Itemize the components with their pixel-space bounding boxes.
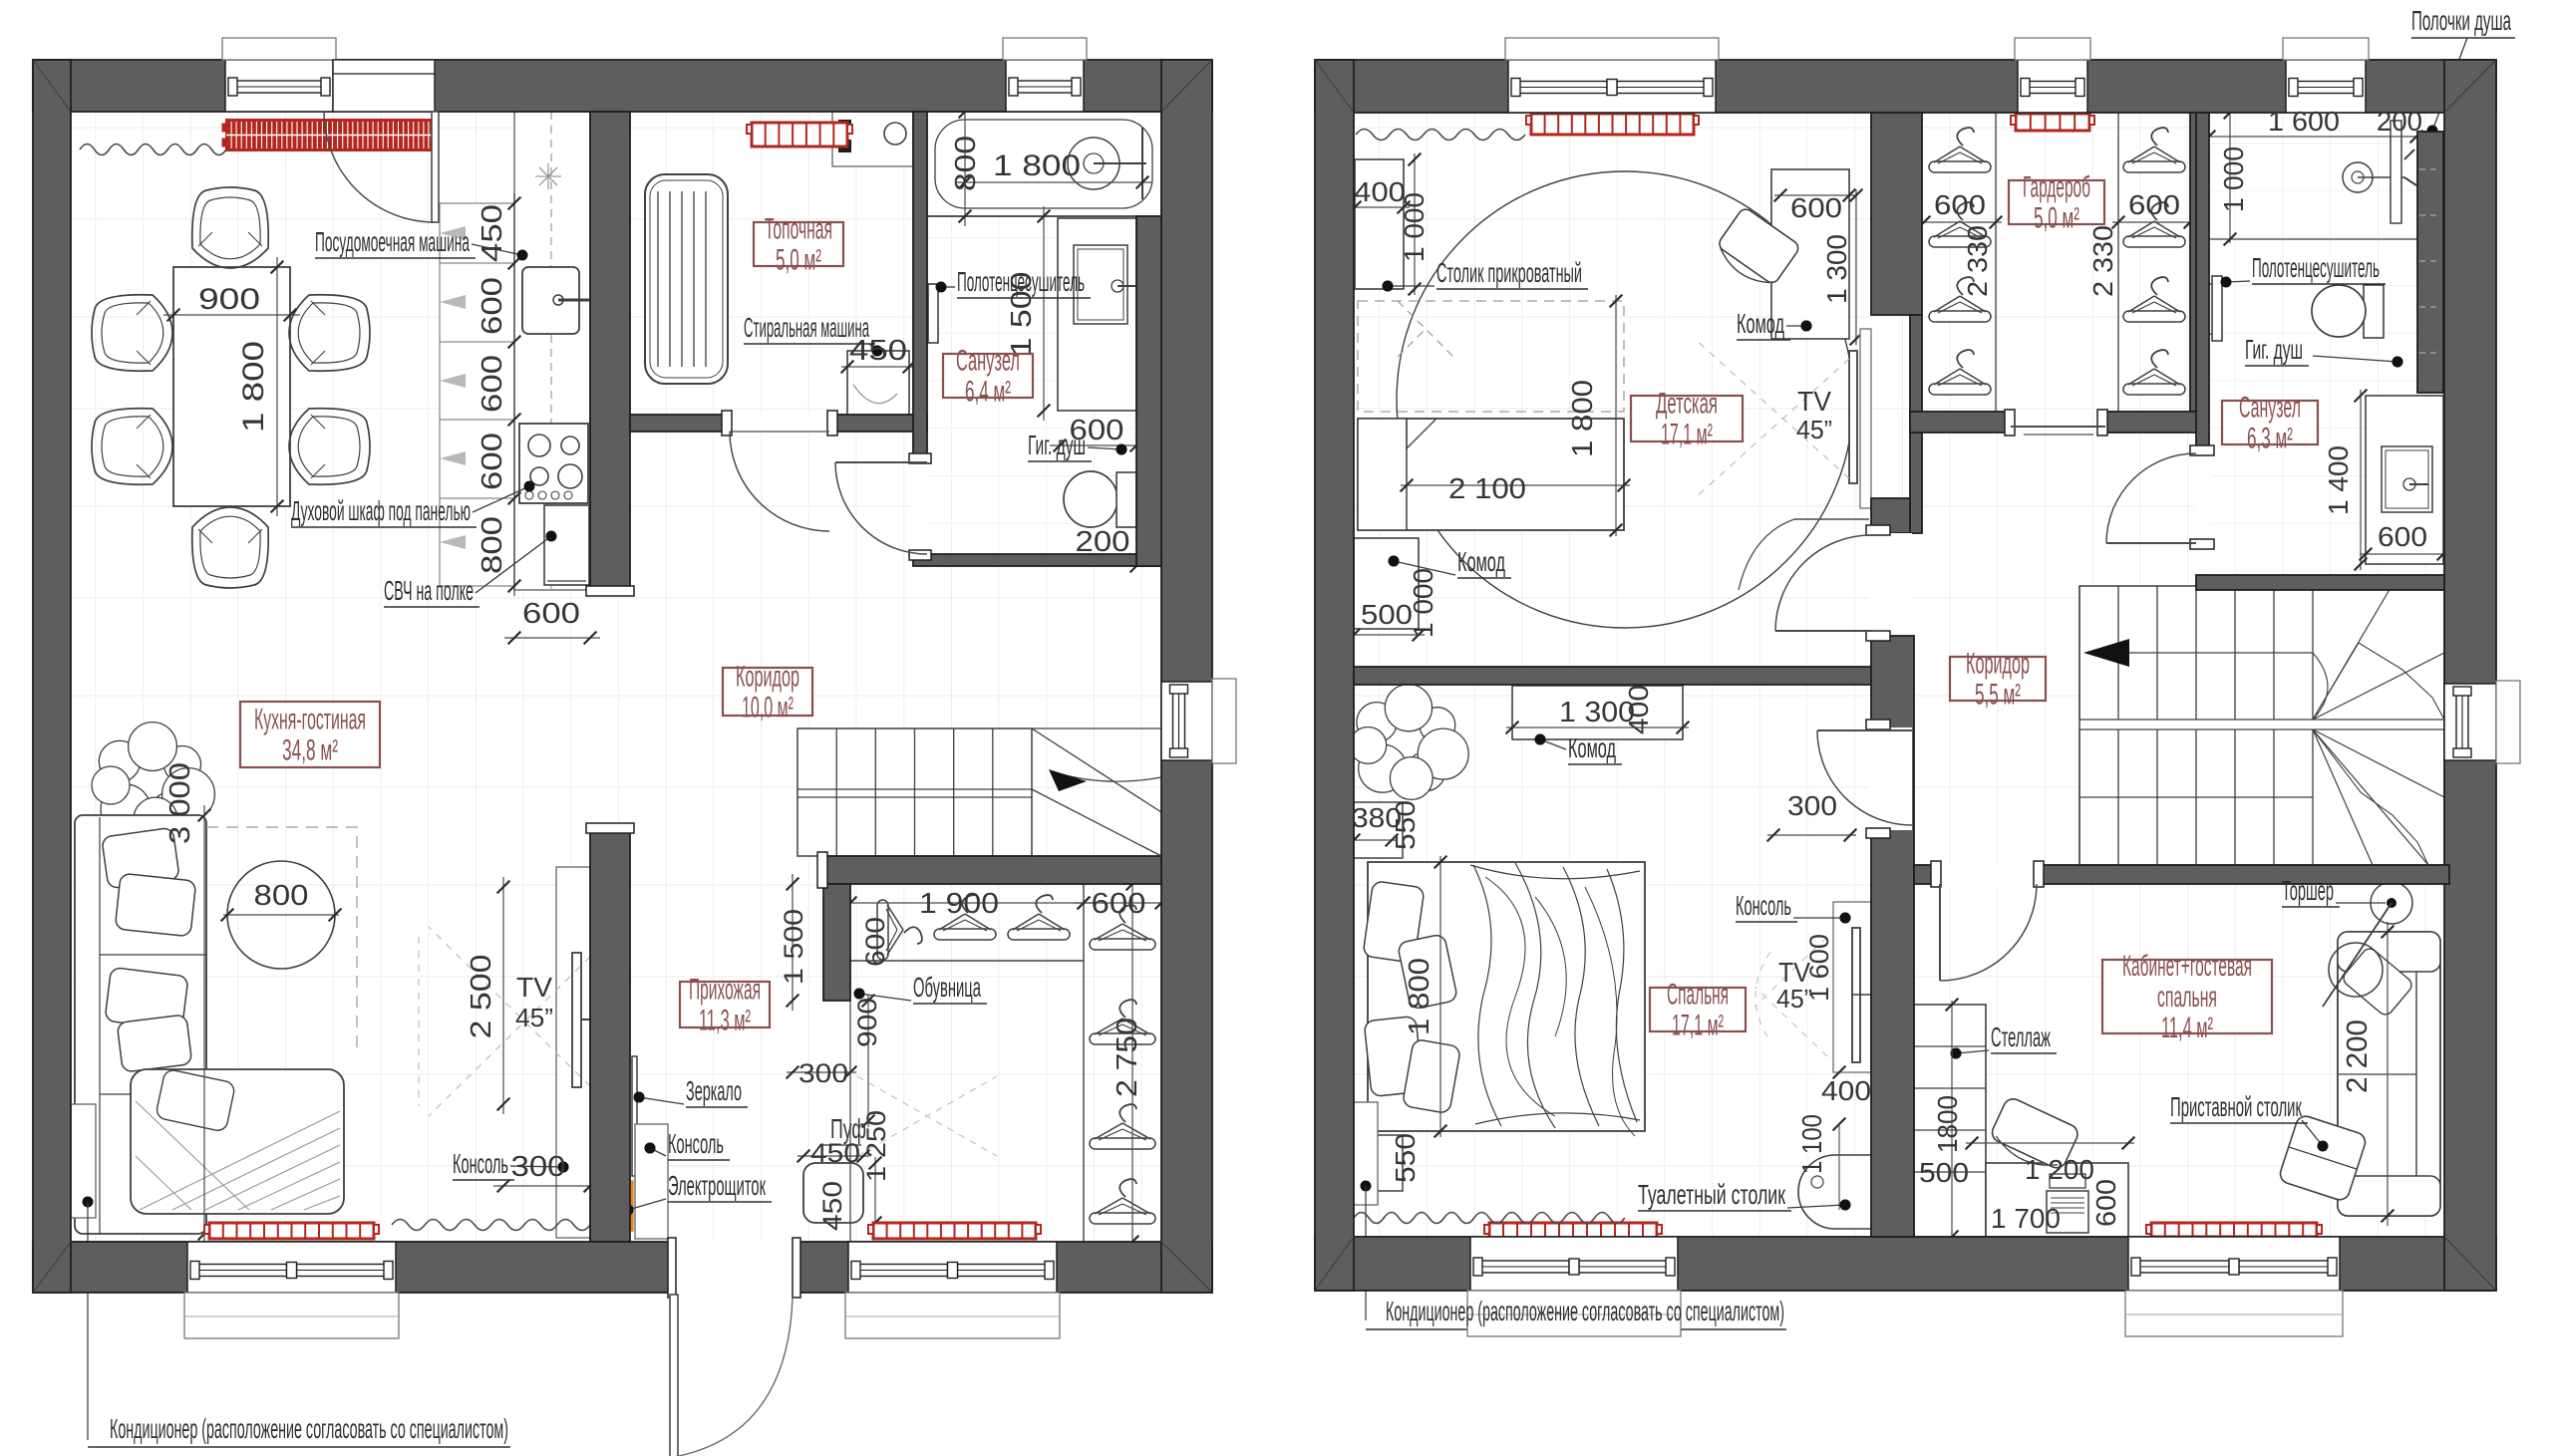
svg-text:2 330: 2 330	[1962, 225, 1993, 297]
svg-text:1 800: 1 800	[993, 149, 1081, 182]
svg-text:Гардероб: Гардероб	[2023, 171, 2090, 204]
svg-text:1 800: 1 800	[1567, 380, 1599, 457]
svg-text:400: 400	[1623, 685, 1654, 734]
svg-text:Санузел: Санузел	[2239, 392, 2301, 425]
svg-text:600: 600	[1092, 888, 1146, 920]
svg-text:1 900: 1 900	[919, 888, 999, 920]
svg-text:2 100: 2 100	[1448, 473, 1526, 505]
svg-text:600: 600	[2128, 189, 2180, 220]
svg-text:17,1 м²: 17,1 м²	[1661, 419, 1713, 451]
svg-text:10,0 м²: 10,0 м²	[742, 692, 794, 725]
svg-text:2 500: 2 500	[466, 955, 497, 1039]
svg-text:Комод: Комод	[1457, 546, 1505, 577]
svg-text:200: 200	[1076, 526, 1130, 558]
svg-text:600: 600	[860, 917, 890, 967]
svg-text:1 300: 1 300	[1821, 234, 1852, 304]
svg-text:34,8 м²: 34,8 м²	[282, 734, 338, 767]
svg-text:Зеркало: Зеркало	[686, 1075, 742, 1106]
svg-text:400: 400	[1821, 1075, 1871, 1106]
svg-text:Кондиционер (расположение согл: Кондиционер (расположение согласовать со…	[110, 1413, 508, 1444]
svg-text:550: 550	[1390, 800, 1421, 850]
svg-text:800: 800	[950, 136, 982, 191]
svg-text:Духовой шкаф под панелью: Духовой шкаф под панелью	[291, 495, 471, 526]
svg-text:Консоль: Консоль	[453, 1148, 508, 1179]
svg-text:Торшер: Торшер	[2282, 875, 2334, 906]
svg-text:450: 450	[810, 1138, 860, 1168]
svg-text:TV: TV	[1797, 386, 1831, 417]
svg-text:300: 300	[798, 1058, 848, 1088]
svg-text:Приставной столик: Приставной столик	[2170, 1091, 2302, 1122]
svg-text:45”: 45”	[515, 1003, 553, 1032]
svg-text:1 000: 1 000	[2218, 146, 2249, 212]
svg-text:Прихожая: Прихожая	[689, 974, 761, 1007]
svg-text:550: 550	[1390, 1133, 1421, 1183]
svg-text:Туалетный столик: Туалетный столик	[1638, 1179, 1785, 1210]
svg-text:800: 800	[477, 516, 508, 574]
svg-text:2 750: 2 750	[1112, 1018, 1143, 1097]
svg-text:Стеллаж: Стеллаж	[1991, 1021, 2051, 1052]
svg-text:Электрощиток: Электрощиток	[668, 1170, 766, 1201]
svg-text:1 700: 1 700	[1991, 1203, 2061, 1234]
svg-text:600: 600	[2378, 521, 2427, 552]
svg-text:Гиг. душ: Гиг. душ	[2245, 334, 2303, 365]
svg-text:900: 900	[852, 998, 882, 1047]
svg-text:Консоль: Консоль	[668, 1128, 724, 1159]
svg-text:600: 600	[1934, 189, 1986, 220]
svg-text:Консоль: Консоль	[1736, 890, 1791, 921]
svg-text:Полочки душа: Полочки душа	[2411, 5, 2511, 36]
svg-text:3 000: 3 000	[164, 762, 196, 844]
svg-text:Комод: Комод	[1737, 308, 1784, 339]
svg-text:45”: 45”	[1796, 415, 1832, 444]
svg-text:1 500: 1 500	[779, 909, 808, 985]
svg-text:Кабинет+гостевая: Кабинет+гостевая	[2122, 950, 2252, 983]
svg-text:450: 450	[477, 204, 508, 262]
svg-text:Гиг. душ: Гиг. душ	[1028, 430, 1086, 460]
svg-text:спальня: спальня	[2157, 981, 2217, 1014]
svg-text:200: 200	[2377, 106, 2422, 137]
svg-text:500: 500	[1361, 599, 1413, 630]
svg-text:300: 300	[1787, 790, 1837, 821]
svg-text:2 200: 2 200	[2342, 1019, 2374, 1093]
svg-text:1 800: 1 800	[1404, 958, 1435, 1035]
svg-text:СВЧ на полке: СВЧ на полке	[384, 575, 474, 606]
svg-text:6,3 м²: 6,3 м²	[2247, 423, 2293, 455]
svg-text:Коридор: Коридор	[1966, 648, 2030, 681]
svg-text:1 000: 1 000	[1399, 192, 1430, 262]
svg-text:600: 600	[477, 355, 508, 413]
svg-text:17,1 м²: 17,1 м²	[1672, 1010, 1724, 1042]
svg-text:Столик прикроватный: Столик прикроватный	[1436, 257, 1582, 288]
svg-text:2 330: 2 330	[2087, 225, 2118, 297]
svg-text:300: 300	[511, 1151, 566, 1183]
svg-text:900: 900	[198, 283, 260, 316]
svg-text:500: 500	[1919, 1157, 1969, 1188]
svg-text:5,0 м²: 5,0 м²	[776, 244, 821, 277]
svg-text:Спальня: Спальня	[1667, 979, 1729, 1012]
svg-text:11,4 м²: 11,4 м²	[2161, 1012, 2213, 1044]
svg-text:Стиральная машина: Стиральная машина	[744, 312, 869, 343]
svg-text:600: 600	[1790, 192, 1842, 223]
svg-text:1 250: 1 250	[861, 1110, 891, 1182]
svg-text:11,3 м²: 11,3 м²	[699, 1005, 751, 1037]
svg-text:TV: TV	[516, 972, 552, 1003]
svg-text:600: 600	[522, 598, 580, 630]
svg-text:800: 800	[254, 880, 309, 912]
svg-text:600: 600	[477, 433, 508, 490]
svg-text:Кухня-гостиная: Кухня-гостиная	[254, 704, 366, 736]
svg-text:Комод: Комод	[1568, 732, 1616, 763]
svg-text:1 800: 1 800	[237, 341, 270, 433]
svg-text:Кондиционер (расположение согл: Кондиционер (расположение согласовать со…	[1386, 1296, 1784, 1326]
svg-text:Топочная: Топочная	[765, 213, 832, 246]
svg-text:Санузел: Санузел	[956, 345, 1020, 378]
svg-text:1 400: 1 400	[2323, 445, 2354, 515]
svg-text:Коридор: Коридор	[736, 661, 799, 694]
svg-text:1 200: 1 200	[2025, 1154, 2094, 1185]
svg-text:1 600: 1 600	[2268, 106, 2340, 137]
svg-text:5,5 м²: 5,5 м²	[1975, 679, 2021, 712]
svg-text:1 000: 1 000	[1408, 568, 1438, 638]
svg-text:450: 450	[817, 1181, 847, 1231]
svg-text:1 100: 1 100	[1796, 1114, 1827, 1174]
svg-text:Полотенцесушитель: Полотенцесушитель	[2252, 252, 2380, 283]
svg-text:600: 600	[2090, 1179, 2121, 1227]
svg-text:Детская: Детская	[1656, 388, 1718, 421]
svg-text:600: 600	[477, 277, 508, 335]
svg-text:1 600: 1 600	[1804, 934, 1834, 1002]
svg-text:5,0 м²: 5,0 м²	[2034, 202, 2079, 235]
svg-text:1800: 1800	[1932, 1095, 1963, 1153]
svg-text:6,4 м²: 6,4 м²	[965, 376, 1011, 409]
svg-text:Посудомоечная машина: Посудомоечная машина	[315, 226, 470, 257]
svg-text:Обувница: Обувница	[913, 972, 981, 1003]
